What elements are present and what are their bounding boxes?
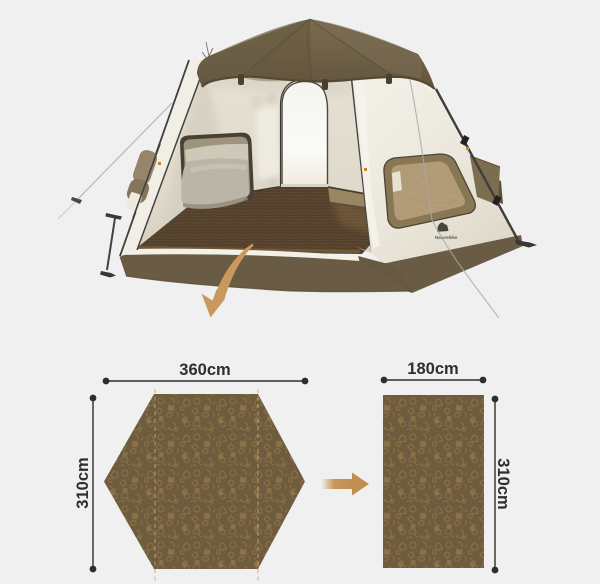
svg-text:Naturehike: Naturehike: [435, 235, 458, 240]
svg-text:360cm: 360cm: [179, 361, 230, 379]
svg-text:310cm: 310cm: [494, 458, 512, 509]
svg-text:180cm: 180cm: [407, 360, 458, 378]
svg-text:310cm: 310cm: [74, 457, 92, 508]
